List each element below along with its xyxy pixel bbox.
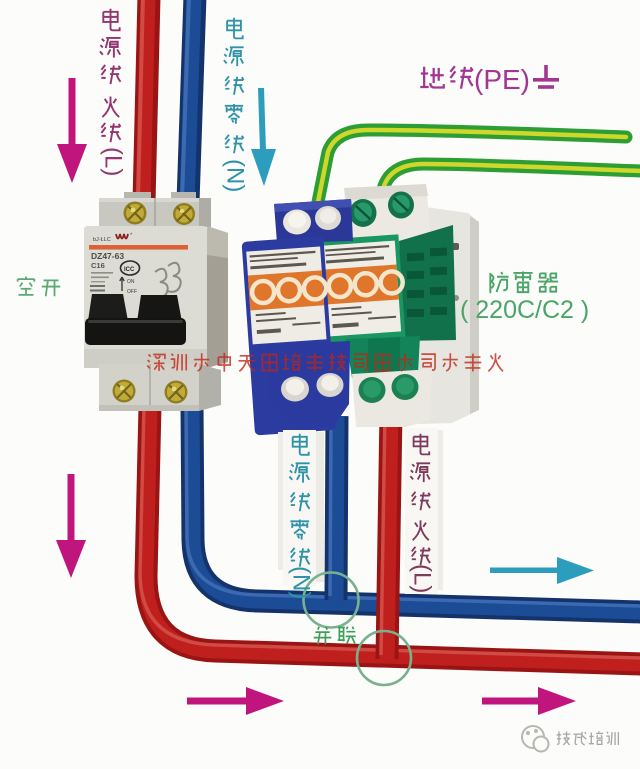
svg-text:bJ·ŁLC: bJ·ŁLC <box>93 237 111 243</box>
svg-text:(L): (L) <box>99 147 126 176</box>
svg-text:(PE): (PE) <box>474 64 530 95</box>
svg-text:( 220C/C2 ): ( 220C/C2 ) <box>460 296 589 324</box>
svg-text:OFF: OFF <box>127 289 137 295</box>
svg-text:(N): (N) <box>221 159 248 192</box>
svg-text:DZ47-63: DZ47-63 <box>91 251 124 261</box>
svg-text:ON: ON <box>127 279 135 285</box>
svg-text:C16: C16 <box>91 261 105 270</box>
svg-text:(N): (N) <box>288 566 315 599</box>
svg-text:ICC: ICC <box>124 267 135 273</box>
svg-text:(L): (L) <box>408 564 435 593</box>
